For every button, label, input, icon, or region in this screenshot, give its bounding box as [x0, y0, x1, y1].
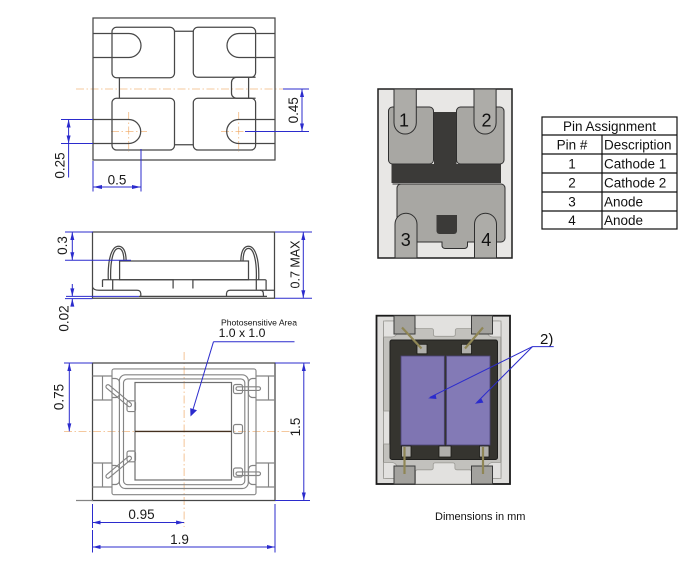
svg-text:1.0 x 1.0: 1.0 x 1.0: [219, 326, 266, 340]
svg-text:1.9: 1.9: [170, 532, 189, 547]
svg-text:1.5: 1.5: [288, 418, 303, 437]
svg-text:Cathode 1: Cathode 1: [604, 157, 666, 172]
svg-text:0.95: 0.95: [128, 507, 154, 522]
svg-text:0.7 MAX: 0.7 MAX: [289, 240, 303, 289]
svg-text:0.25: 0.25: [53, 152, 68, 178]
svg-text:0.02: 0.02: [57, 305, 72, 331]
svg-text:Anode: Anode: [604, 195, 643, 210]
svg-text:2: 2: [568, 176, 576, 191]
svg-text:3: 3: [568, 195, 576, 210]
svg-text:Pin Assignment: Pin Assignment: [563, 119, 656, 134]
svg-text:4: 4: [568, 213, 576, 228]
svg-text:2: 2: [481, 110, 491, 130]
svg-text:Description: Description: [604, 138, 672, 153]
svg-text:2): 2): [540, 331, 553, 348]
svg-text:1: 1: [399, 110, 409, 130]
svg-text:0.3: 0.3: [55, 236, 70, 255]
svg-text:0.45: 0.45: [286, 97, 301, 123]
svg-text:0.5: 0.5: [108, 173, 127, 188]
svg-text:0.75: 0.75: [52, 384, 67, 410]
svg-text:4: 4: [481, 230, 491, 250]
svg-text:Cathode 2: Cathode 2: [604, 176, 666, 191]
svg-text:3: 3: [401, 230, 411, 250]
svg-text:Pin #: Pin #: [557, 138, 588, 153]
svg-text:Anode: Anode: [604, 213, 643, 228]
svg-text:Dimensions in mm: Dimensions in mm: [435, 511, 525, 523]
svg-text:1: 1: [568, 157, 576, 172]
